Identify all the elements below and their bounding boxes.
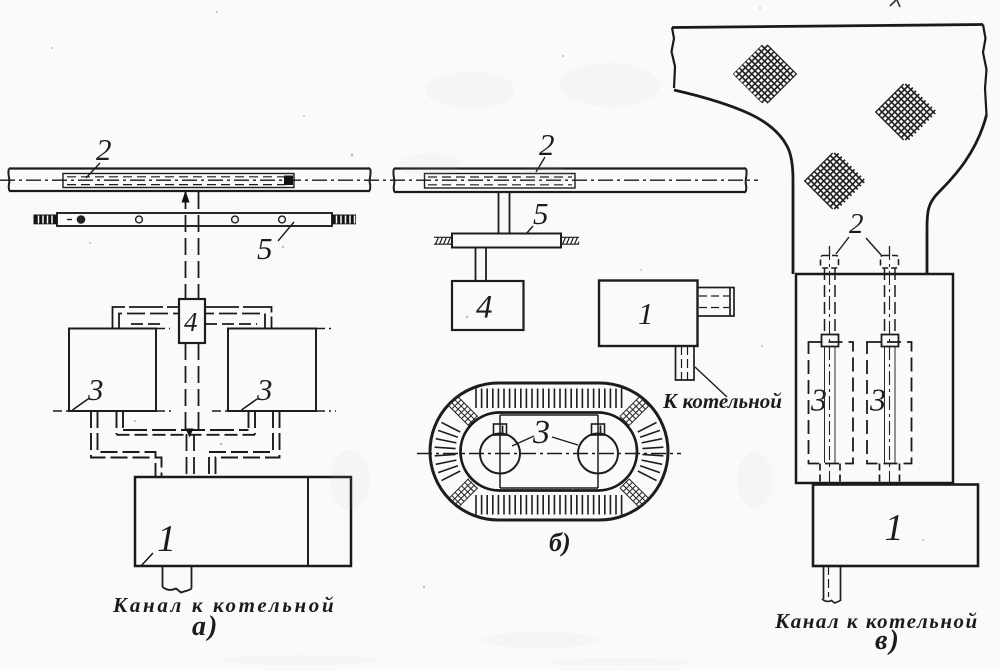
- svg-text:3: 3: [869, 382, 886, 418]
- svg-text:2: 2: [539, 127, 555, 162]
- svg-text:К котельной: К котельной: [662, 389, 782, 413]
- svg-text:4: 4: [184, 307, 198, 337]
- svg-text:1: 1: [638, 296, 654, 331]
- svg-text:а): а): [192, 611, 219, 642]
- svg-text:б): б): [549, 528, 571, 557]
- svg-text:2: 2: [849, 208, 864, 240]
- svg-text:1: 1: [885, 507, 904, 549]
- svg-text:в): в): [875, 625, 901, 656]
- svg-text:3: 3: [87, 372, 104, 407]
- svg-text:4: 4: [476, 290, 493, 326]
- svg-text:Канал к котельной: Канал к котельной: [112, 593, 336, 617]
- svg-text:3: 3: [256, 372, 273, 407]
- svg-text:3: 3: [532, 414, 550, 451]
- svg-text:1: 1: [157, 518, 176, 560]
- svg-text:5: 5: [257, 231, 273, 266]
- svg-text:5: 5: [533, 196, 549, 231]
- svg-text:2: 2: [96, 132, 112, 167]
